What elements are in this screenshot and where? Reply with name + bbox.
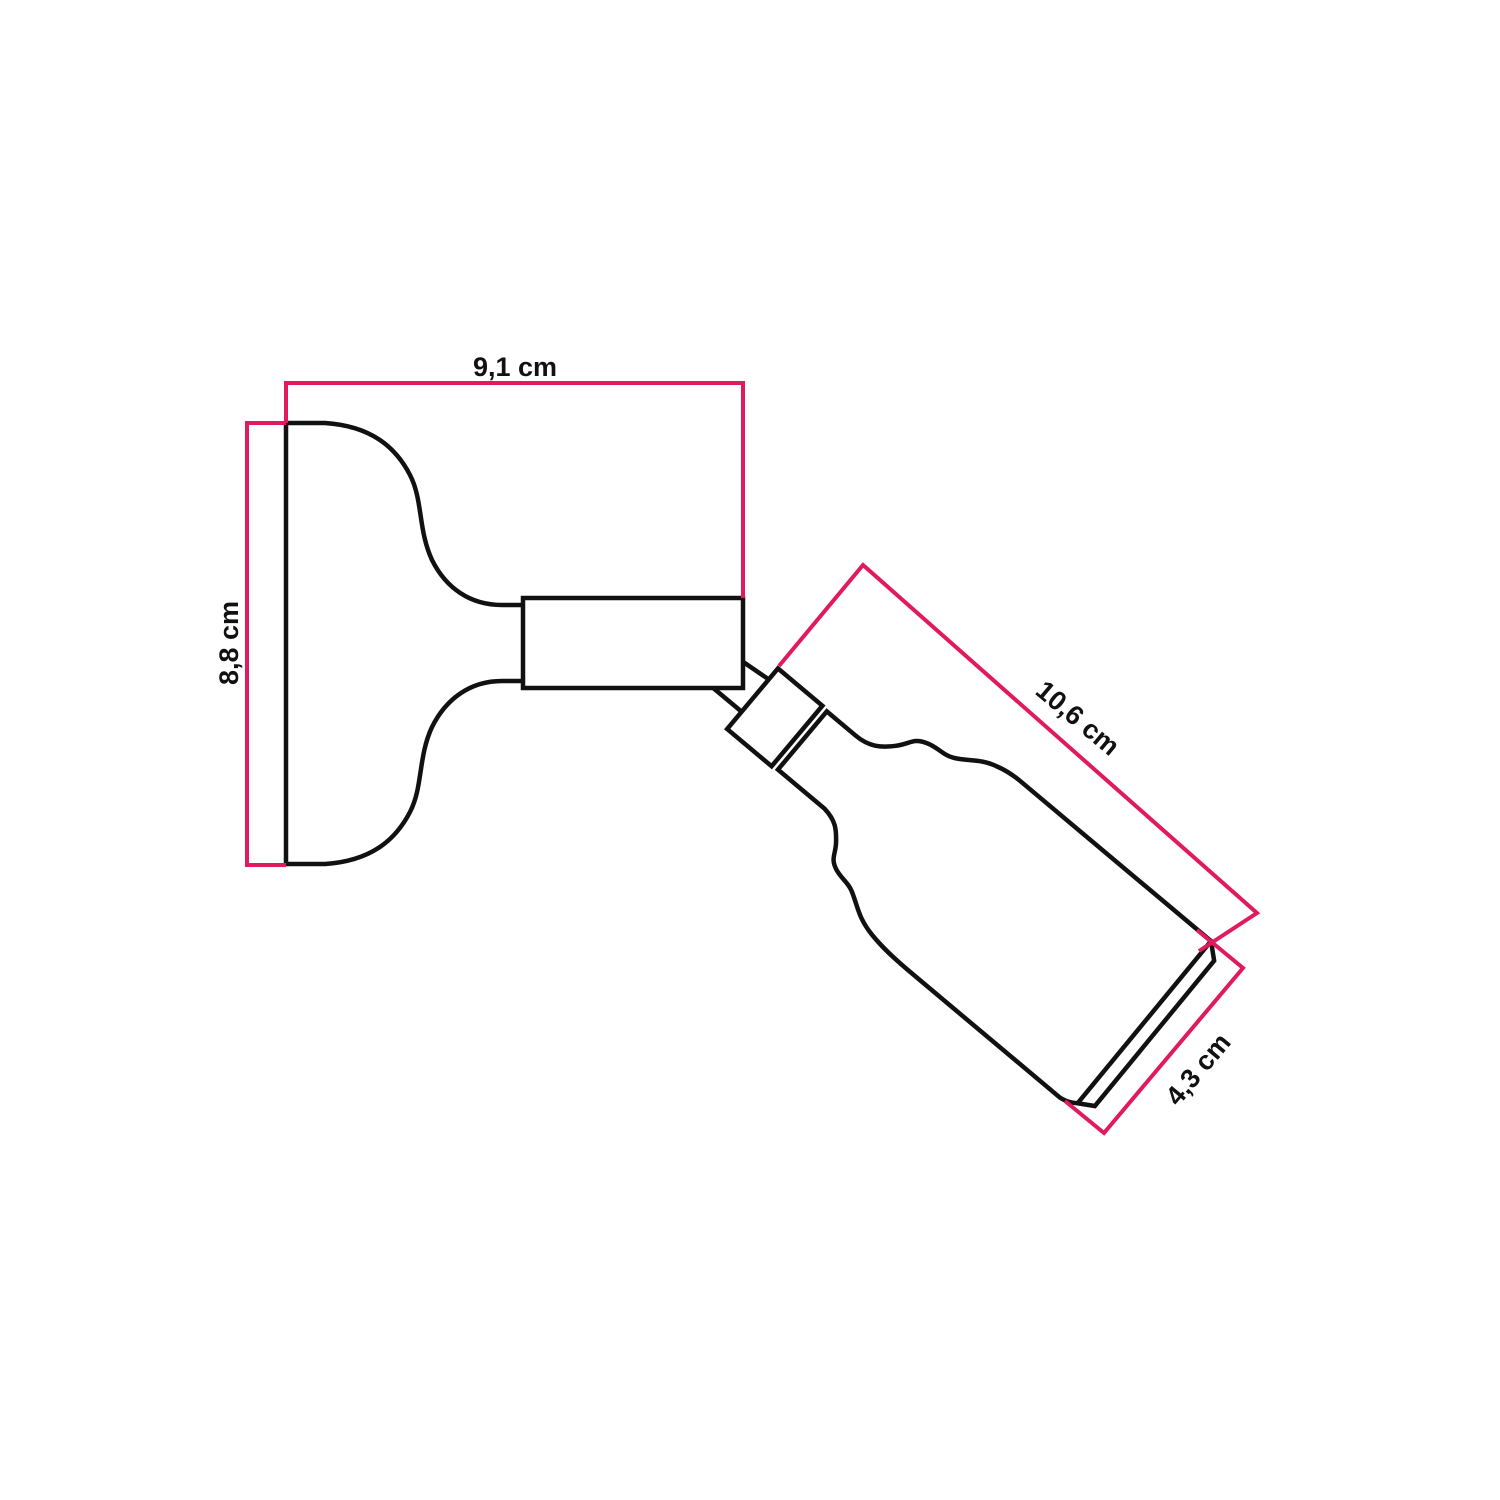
label-base-width: 9,1 cm xyxy=(473,352,557,382)
label-base-height: 8,8 cm xyxy=(214,601,244,685)
dimension-diagram: 9,1 cm 8,8 cm 10,6 cm 4,3 cm xyxy=(0,0,1500,1500)
socket-cylinder xyxy=(523,598,743,688)
